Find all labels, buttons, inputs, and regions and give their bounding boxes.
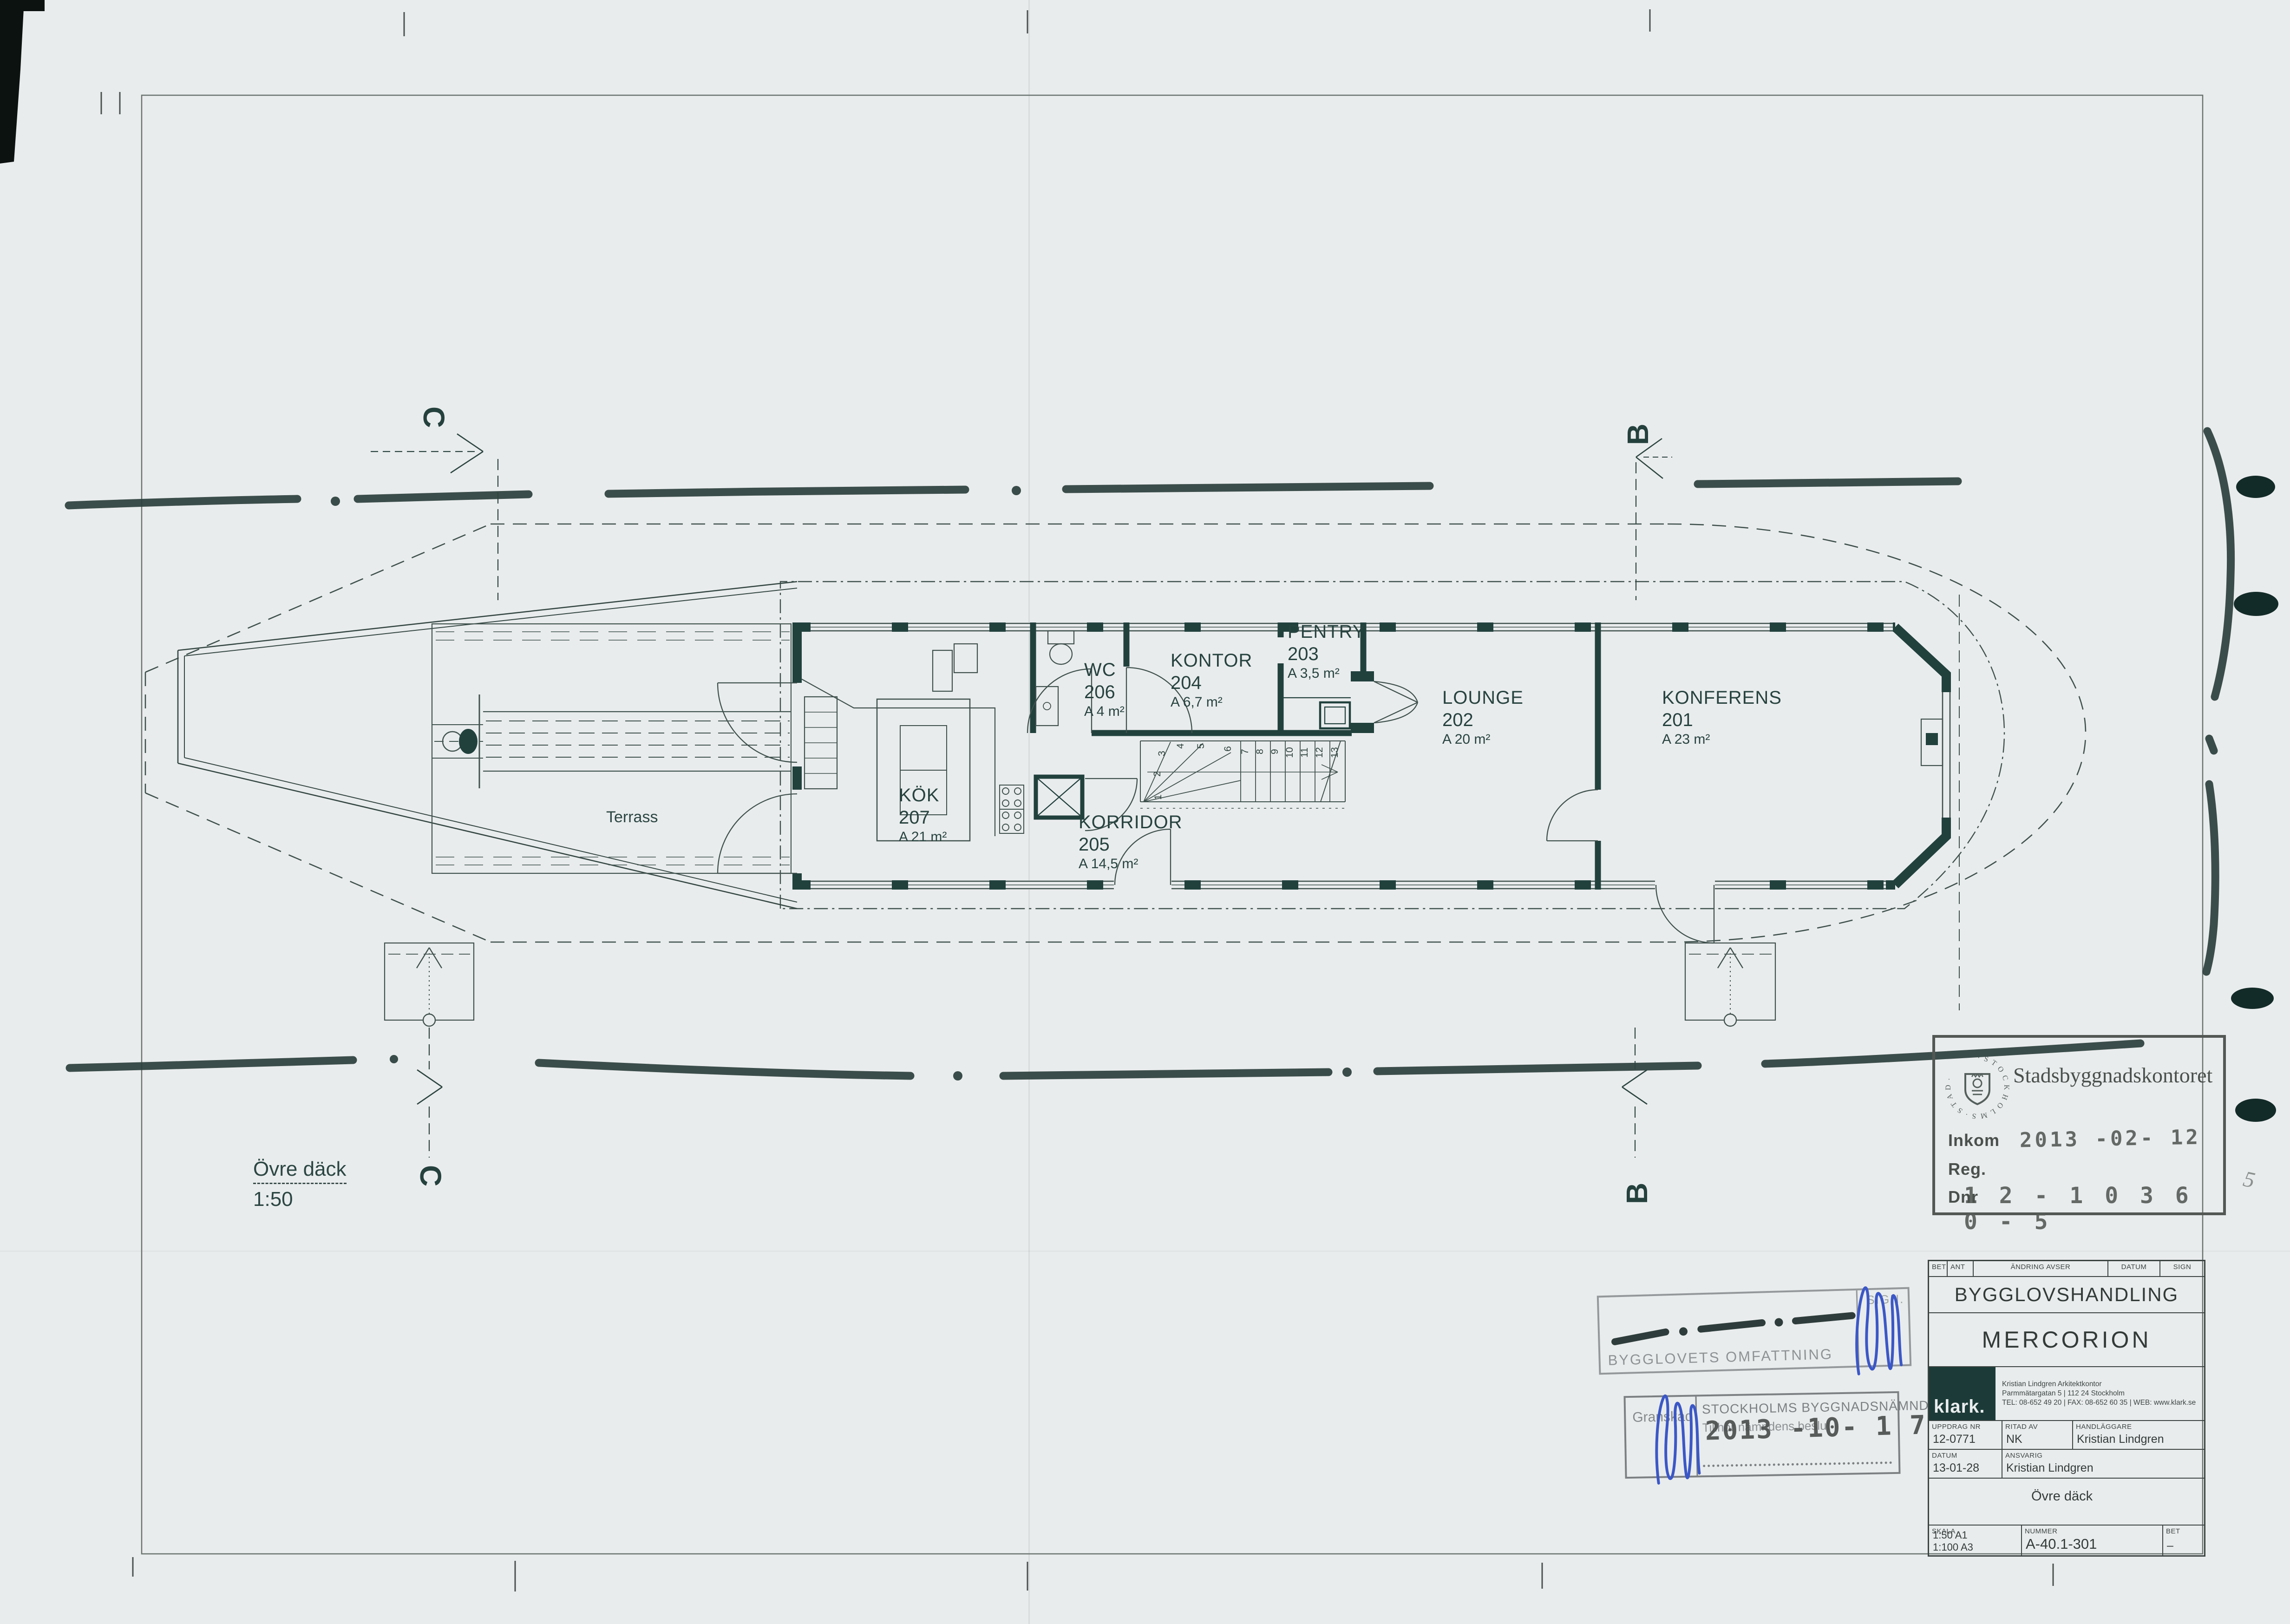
svg-text:10: 10 (1284, 747, 1295, 758)
scanned-drawing-sheet: 1 2 3 4 5 6 7 8 9 10 11 12 13 (0, 0, 2290, 1624)
stockholm-city-emblem: · S T O C K H O L M S · S T A D · (1938, 1050, 2017, 1133)
ansvarig-value: Kristian Lindgren (2006, 1461, 2094, 1475)
room-number: 201 (1662, 710, 1782, 730)
gangway-symbol-right (1685, 943, 1775, 1026)
skala-a1: 1:50 A1 (1933, 1529, 1973, 1541)
room-number: 203 (1288, 644, 1366, 664)
drawing-title-scale: Övre däck 1:50 (253, 1158, 347, 1211)
cooktop (1000, 785, 1024, 833)
doc-type: BYGGLOVSHANDLING (1929, 1277, 2204, 1313)
meta-row-2: DATUM 13-01-28 ANSVARIG Kristian Lindgre… (1929, 1450, 2204, 1479)
room-name: KÖK (899, 785, 947, 805)
firm-info: Kristian Lindgren Arkitektkontor Parmmät… (2002, 1380, 2196, 1408)
reg-label: Reg. (1948, 1159, 1986, 1179)
svg-text:2: 2 (1152, 771, 1163, 777)
scale-value: 1:50 (253, 1188, 347, 1211)
room-label-konferens: KONFERENS 201 A 23 m² (1662, 688, 1782, 747)
room-name: KORRIDOR (1079, 812, 1183, 832)
signature-scribble (1842, 1272, 1915, 1381)
inkom-date: 2013 -02- 12 (2020, 1126, 2201, 1153)
registry-stamp: · S T O C K H O L M S · S T A D · Stadsb… (1932, 1035, 2226, 1215)
room-number: 205 (1079, 834, 1183, 855)
firm-line1: Kristian Lindgren Arkitektkontor (2002, 1380, 2196, 1389)
review-signature-scribble (1639, 1380, 1701, 1488)
rev-col-bet: BET (1929, 1261, 1948, 1276)
room-name: LOUNGE (1442, 688, 1524, 708)
scale-number-row: SKALA 1:50 A1 1:100 A3 NUMMER A-40.1-301… (1929, 1526, 2204, 1555)
room-label-kontor: KONTOR 204 A 6,7 m² (1171, 650, 1252, 710)
room-area: A 20 m² (1442, 732, 1524, 747)
rev-col-datum: DATUM (2108, 1261, 2160, 1276)
permit-scope-marker-line (69, 431, 2231, 1080)
meta-row-1: UPPDRAG NR 12-0771 RITAD AV NK HANDLÄGGA… (1929, 1421, 2204, 1450)
firm-line3: TEL: 08-652 49 20 | FAX: 08-652 60 35 | … (2002, 1398, 2196, 1408)
uppdrag-value: 12-0771 (1933, 1433, 1976, 1446)
gangway-symbol-left (385, 943, 474, 1026)
skala-a3: 1:100 A3 (1933, 1541, 1973, 1553)
scan-artifact (0, 0, 45, 164)
room-label-pentry: PENTRY 203 A 3,5 m² (1288, 622, 1366, 681)
section-letter-b-top: B (1621, 424, 1655, 445)
room-name: KONFERENS (1662, 688, 1782, 708)
window-band-bottom (811, 881, 1886, 889)
svg-text:1: 1 (1153, 794, 1164, 800)
datum-label: DATUM (1929, 1450, 2002, 1461)
room-number: 202 (1442, 710, 1524, 730)
room-area: A 3,5 m² (1288, 666, 1366, 681)
svg-text:4: 4 (1175, 743, 1186, 749)
wc-fixtures (1036, 631, 1074, 726)
stair-numbers: 1 2 3 4 5 6 7 8 9 10 11 12 13 (1152, 743, 1340, 800)
room-name: KONTOR (1171, 650, 1252, 671)
room-label-lounge: LOUNGE 202 A 20 m² (1442, 688, 1524, 747)
section-letter-b-bottom: B (1620, 1183, 1654, 1204)
room-area: A 23 m² (1662, 732, 1782, 747)
klark-logo: klark. (1929, 1367, 1996, 1420)
project-name: MERCORION (1929, 1313, 2204, 1367)
svg-text:7: 7 (1240, 749, 1250, 754)
review-stamp: Granskad STOCKHOLMS BYGGNADSNÄMND Tillhö… (1623, 1391, 1900, 1479)
svg-text:3: 3 (1157, 751, 1167, 756)
firm-line2: Parmmätargatan 5 | 112 24 Stockholm (2002, 1389, 2196, 1398)
cabin-exterior-walls (792, 622, 1950, 891)
title-block: BET ANT ÄNDRING AVSER DATUM SIGN BYGGLOV… (1928, 1260, 2205, 1557)
svg-text:13: 13 (1329, 747, 1340, 758)
window-stern (1943, 692, 1950, 818)
room-name: WC (1084, 660, 1125, 680)
drawing-label: Övre däck (253, 1158, 347, 1184)
nummer-value: A-40.1-301 (2026, 1536, 2097, 1552)
svg-text:5: 5 (1196, 743, 1206, 749)
ansvarig-label: ANSVARIG (2002, 1450, 2204, 1461)
svg-text:12: 12 (1314, 747, 1325, 758)
room-label-wc: WC 206 A 4 m² (1084, 660, 1125, 719)
rev-col-ant: ANT (1948, 1261, 1974, 1276)
dotted-rule (1703, 1461, 1892, 1467)
svg-text:11: 11 (1299, 747, 1310, 758)
room-area: A 21 m² (899, 829, 947, 845)
shaft (1036, 777, 1082, 818)
sheet-content: Övre däck (2031, 1489, 2093, 1504)
rev-col-andring: ÄNDRING AVSER (1974, 1261, 2108, 1276)
room-label-korridor: KORRIDOR 205 A 14,5 m² (1079, 812, 1183, 871)
scope-stamp: BYGGLOVETS OMFATTNING SIGN. (1597, 1287, 1911, 1375)
svg-text:9: 9 (1269, 749, 1280, 754)
review-date: 2013 -10- 1 7 (1705, 1410, 1927, 1446)
room-label-kok: KÖK 207 A 21 m² (899, 785, 947, 845)
terrace-label: Terrass (606, 808, 658, 826)
dumbwaiter (1281, 698, 1351, 728)
room-number: 204 (1171, 673, 1252, 693)
ritad-value: NK (2006, 1433, 2022, 1446)
section-markers (371, 434, 1672, 1158)
ritad-label: RITAD AV (2002, 1421, 2072, 1433)
room-number: 206 (1084, 682, 1125, 702)
content-row: Övre däck (1929, 1479, 2204, 1526)
inkom-label: Inkom (1948, 1131, 2000, 1150)
rev-col-sign: SIGN (2160, 1261, 2204, 1276)
section-letter-c-top: C (417, 406, 451, 428)
conference-cabinet (1921, 719, 1943, 766)
firm-row: klark. Kristian Lindgren Arkitektkontor … (1929, 1367, 2204, 1421)
bet-value: – (2167, 1539, 2173, 1552)
room-area: A 6,7 m² (1171, 694, 1252, 710)
uppdrag-label: UPPDRAG NR (1929, 1421, 2002, 1433)
svg-text:6: 6 (1223, 746, 1233, 752)
datum-value: 13-01-28 (1933, 1461, 1979, 1475)
stamp-office-name: Stadsbyggnadskontoret (2013, 1063, 2212, 1087)
room-number: 207 (899, 807, 947, 828)
handlaggare-value: Kristian Lindgren (2077, 1433, 2164, 1446)
revision-header-row: BET ANT ÄNDRING AVSER DATUM SIGN (1929, 1261, 2204, 1277)
section-letter-c-bottom: C (414, 1165, 447, 1186)
room-name: PENTRY (1288, 622, 1366, 642)
dnr-value: 1 2 - 1 0 3 6 0 - 5 (1964, 1183, 2223, 1235)
room-area: A 4 m² (1084, 704, 1125, 719)
svg-text:8: 8 (1255, 749, 1265, 754)
dnr-label: Dnr (1948, 1187, 1978, 1207)
bet-label: BET (2163, 1526, 2204, 1537)
room-area: A 14,5 m² (1079, 856, 1183, 871)
winch-fitting (459, 729, 478, 754)
punch-holes (2231, 476, 2278, 1122)
handlaggare-label: HANDLÄGGARE (2073, 1421, 2204, 1433)
